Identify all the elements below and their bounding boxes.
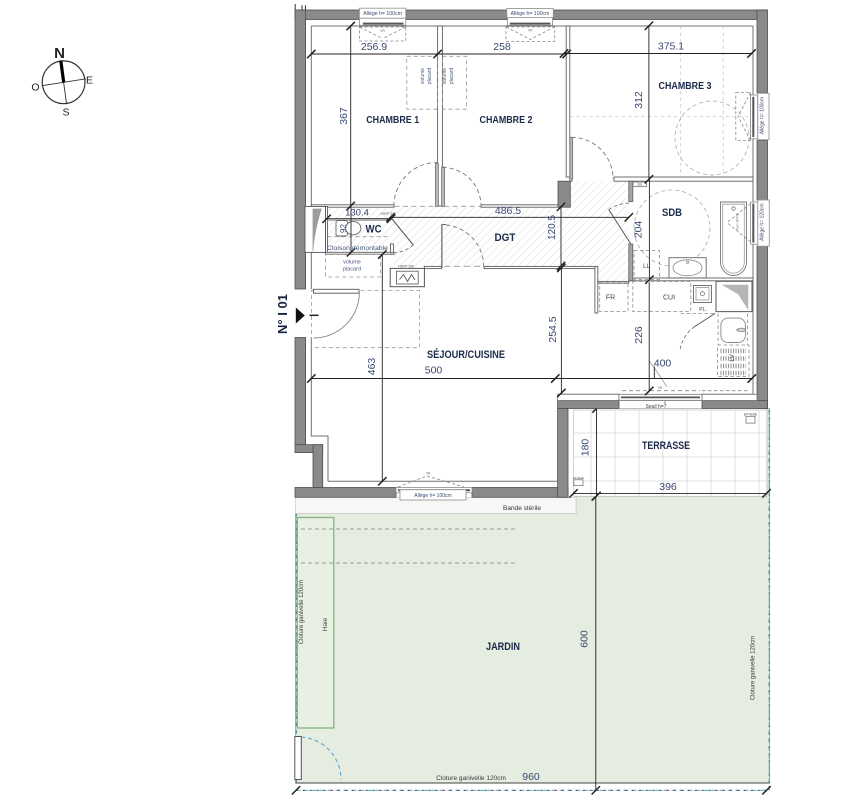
svg-text:WC: WC	[366, 224, 382, 236]
svg-text:180: 180	[580, 439, 592, 457]
svg-text:placard: placard	[427, 68, 433, 85]
svg-text:N: N	[54, 45, 65, 62]
svg-text:VR: VR	[528, 29, 533, 33]
svg-text:120.5: 120.5	[547, 215, 558, 240]
svg-text:TERRASSE: TERRASSE	[642, 440, 690, 452]
svg-text:BS: BS	[638, 183, 642, 187]
svg-text:Allège h= 120cm: Allège h= 120cm	[760, 204, 766, 241]
svg-text:Cloture ganivelle 120cm: Cloture ganivelle 120cm	[751, 636, 757, 700]
svg-text:Cloture ganivelle 120cm: Cloture ganivelle 120cm	[436, 775, 506, 782]
svg-text:486.5: 486.5	[495, 205, 521, 217]
svg-text:Allège h= 100cm: Allège h= 100cm	[363, 11, 402, 17]
svg-text:400: 400	[654, 358, 672, 370]
svg-text:EP+EAE: EP+EAE	[744, 412, 758, 416]
svg-text:CHAMBRE 2: CHAMBRE 2	[480, 114, 533, 126]
svg-text:Cloison démontable: Cloison démontable	[327, 245, 388, 252]
svg-text:226: 226	[633, 326, 645, 344]
svg-text:254.5: 254.5	[547, 316, 559, 342]
svg-text:VR: VR	[380, 29, 385, 33]
svg-text:Allège h= 100cm: Allège h= 100cm	[414, 493, 451, 499]
svg-text:volume: volume	[343, 260, 361, 266]
svg-text:DGT: DGT	[495, 232, 516, 244]
svg-text:600: 600	[579, 630, 591, 648]
svg-text:S: S	[62, 107, 69, 119]
svg-text:PL.: PL.	[699, 307, 707, 313]
svg-text:Allège h= 100cm: Allège h= 100cm	[511, 11, 550, 17]
svg-text:N° I 01: N° I 01	[275, 294, 290, 334]
svg-text:Allège h= 100cm: Allège h= 100cm	[759, 97, 765, 134]
svg-text:JARDIN: JARDIN	[486, 641, 520, 653]
svg-text:VR: VR	[426, 472, 431, 476]
svg-text:204: 204	[633, 221, 645, 239]
svg-text:130.4: 130.4	[345, 207, 369, 218]
svg-text:396: 396	[659, 481, 677, 493]
svg-text:Cloture ganivelle 120cm: Cloture ganivelle 120cm	[299, 580, 305, 644]
svg-text:960: 960	[522, 771, 540, 783]
svg-text:volume: volume	[442, 68, 448, 84]
svg-text:CUI: CUI	[663, 295, 675, 302]
svg-text:312: 312	[633, 91, 645, 109]
svg-text:E: E	[86, 75, 93, 87]
svg-text:258: 258	[493, 41, 511, 53]
svg-text:256.9: 256.9	[361, 41, 387, 53]
svg-text:367: 367	[338, 107, 350, 125]
svg-text:volume: volume	[420, 68, 426, 84]
svg-text:SDB: SDB	[662, 207, 682, 219]
svg-text:375.1: 375.1	[658, 41, 684, 53]
svg-text:500: 500	[425, 365, 443, 377]
svg-text:FR: FR	[606, 295, 615, 302]
svg-text:Seuil h=7: Seuil h=7	[646, 404, 667, 410]
svg-text:VR: VR	[658, 386, 663, 390]
svg-text:SÉJOUR/CUISINE: SÉJOUR/CUISINE	[427, 348, 505, 361]
svg-text:EP+BAE: EP+BAE	[573, 476, 584, 480]
svg-text:Gain BPNE: Gain BPNE	[736, 212, 740, 230]
svg-text:HSFP 220: HSFP 220	[381, 212, 397, 216]
svg-text:placard: placard	[343, 267, 361, 273]
svg-text:Haie: Haie	[322, 617, 329, 631]
svg-text:placard: placard	[449, 68, 455, 85]
svg-text:CHAMBRE 1: CHAMBRE 1	[366, 114, 419, 126]
svg-text:Bande stérile: Bande stérile	[503, 505, 541, 512]
svg-text:CHAMBRE 3: CHAMBRE 3	[659, 80, 712, 92]
svg-text:O: O	[31, 82, 39, 94]
svg-text:LV: LV	[729, 354, 736, 362]
svg-text:463: 463	[366, 358, 378, 376]
svg-text:92: 92	[339, 224, 348, 233]
svg-text:HSFP 195: HSFP 195	[398, 264, 414, 268]
